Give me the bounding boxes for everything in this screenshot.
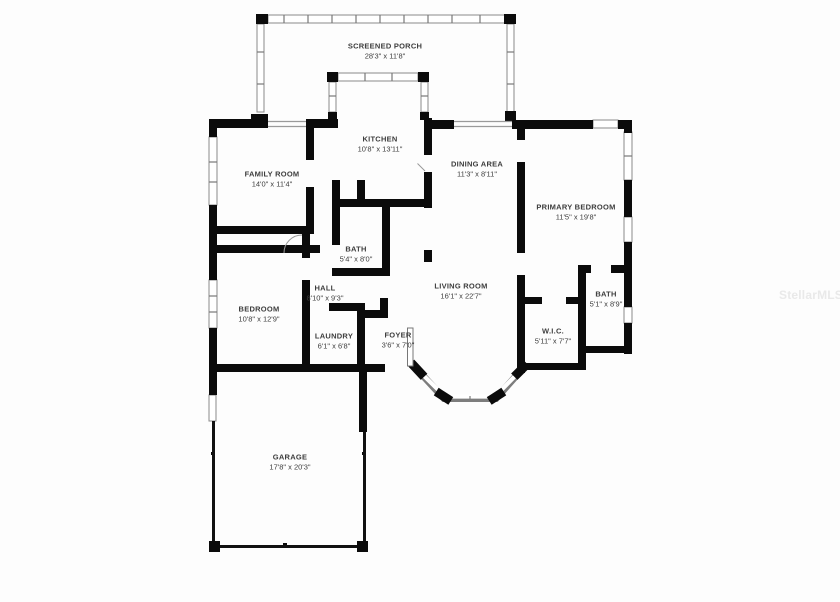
window-bedroom-left (209, 280, 217, 328)
window-family-left (209, 137, 217, 205)
porch-screen-top (268, 15, 506, 23)
openings-layer (268, 122, 512, 127)
nook-window-left (329, 82, 336, 112)
garage-side-door (209, 395, 216, 421)
bay-window (414, 366, 524, 401)
window-right-mid (624, 217, 632, 242)
window-mullions (209, 15, 632, 312)
window-bath2 (624, 307, 632, 323)
floor-plan-page: SCREENED PORCH28'3" x 11'8"KITCHEN10'8" … (0, 0, 840, 602)
porch-screen-right (507, 24, 514, 112)
porch-screen-left (257, 24, 264, 112)
window-top-right (593, 120, 618, 128)
garage-thin-walls (212, 421, 366, 548)
kitchen-door-leaf (418, 164, 426, 172)
floor-plan-drawing (0, 0, 840, 602)
nook-window-top (338, 73, 418, 81)
front-door (408, 328, 414, 366)
watermark: StellarMLS (779, 288, 840, 302)
nook-window-right (421, 82, 428, 112)
